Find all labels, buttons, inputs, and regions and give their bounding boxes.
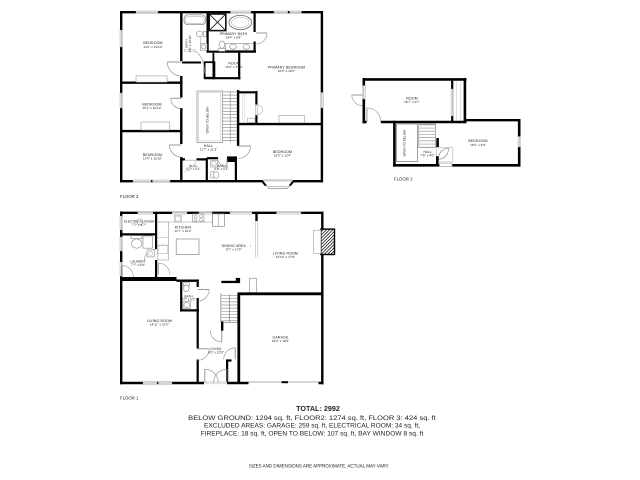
svg-text:7'7" x 6'0": 7'7" x 6'0" <box>131 263 145 267</box>
svg-text:19'3" x 19'9": 19'3" x 19'9" <box>272 339 290 343</box>
svg-text:16'5" x 12'4": 16'5" x 12'4" <box>274 154 292 158</box>
svg-text:7'5" x 4'0": 7'5" x 4'0" <box>421 154 435 158</box>
svg-text:16'5" x 9'4": 16'5" x 9'4" <box>470 143 486 147</box>
svg-text:12'7" x 10'2": 12'7" x 10'2" <box>174 229 192 233</box>
svg-text:16'5" x 20'2": 16'5" x 20'2" <box>278 69 296 73</box>
svg-text:FLOOR 3: FLOOR 3 <box>394 176 413 181</box>
svg-text:12'7" x 21'3": 12'7" x 21'3" <box>200 147 218 151</box>
svg-text:14'2" x 10'10": 14'2" x 10'10" <box>143 45 162 49</box>
svg-text:FIREPLACE: 18 sq. ft, OPEN TO: FIREPLACE: 18 sq. ft, OPEN TO BELOW: 107… <box>201 431 424 438</box>
svg-text:SIZES AND DIMENSIONS ARE APPRO: SIZES AND DIMENSIONS ARE APPROXIMATE, AC… <box>249 464 390 470</box>
svg-text:FLOOR 2: FLOOR 2 <box>120 194 139 199</box>
svg-text:EXCLUDED AREAS: GARAGE: 259 sq: EXCLUDED AREAS: GARAGE: 259 sq. ft, ELEC… <box>204 423 420 430</box>
svg-text:15'10" x 17'9": 15'10" x 17'9" <box>276 255 295 259</box>
svg-text:6'8" x 5'1": 6'8" x 5'1" <box>215 167 229 171</box>
svg-text:OPEN TO BELOW: OPEN TO BELOW <box>205 107 209 134</box>
svg-text:14'11" x 22'5": 14'11" x 22'5" <box>150 322 169 326</box>
svg-text:16'7" x 9'7": 16'7" x 9'7" <box>404 100 420 104</box>
svg-text:FLOOR 1: FLOOR 1 <box>120 396 139 401</box>
svg-text:OPEN TO BELOW: OPEN TO BELOW <box>402 130 406 157</box>
svg-text:4'0" x 10'10": 4'0" x 10'10" <box>188 35 192 52</box>
svg-text:10'4" x 5'10": 10'4" x 5'10" <box>225 65 243 69</box>
svg-text:7'7" x 4'7": 7'7" x 4'7" <box>132 223 146 227</box>
svg-text:4'7" x 5'2": 4'7" x 5'2" <box>182 298 196 302</box>
svg-text:TOTAL: 2992: TOTAL: 2992 <box>296 404 340 413</box>
svg-text:15'1" x 10'10": 15'1" x 10'10" <box>142 106 161 110</box>
svg-text:BELOW GROUND: 1294 sq. ft, FLO: BELOW GROUND: 1294 sq. ft, FLOOR2: 1274 … <box>188 415 436 422</box>
svg-text:10'4" x 8'8": 10'4" x 8'8" <box>226 36 242 40</box>
svg-text:13'4" x 10'10": 13'4" x 10'10" <box>143 156 162 160</box>
svg-text:5'7" x 5'1": 5'7" x 5'1" <box>187 167 201 171</box>
svg-text:9'7" x 17'9": 9'7" x 17'9" <box>226 247 242 251</box>
svg-text:9'0" x 22'9": 9'0" x 22'9" <box>208 351 224 355</box>
